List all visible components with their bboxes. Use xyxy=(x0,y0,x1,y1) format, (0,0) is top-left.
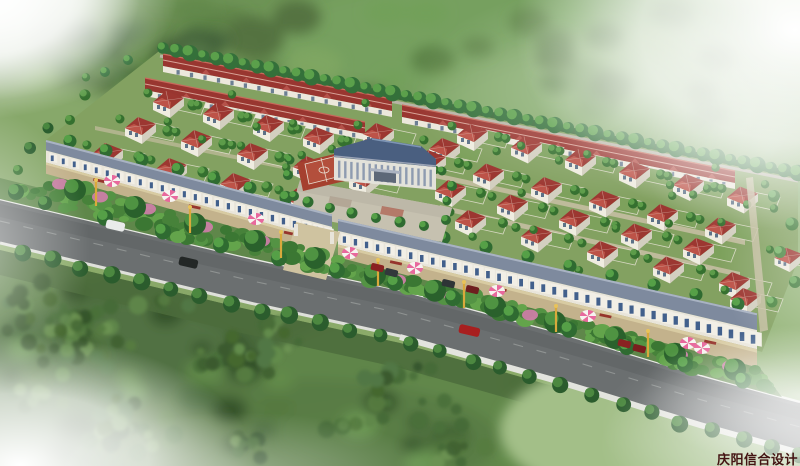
svg-text:庆阳信合设计: 庆阳信合设计 xyxy=(716,452,798,466)
